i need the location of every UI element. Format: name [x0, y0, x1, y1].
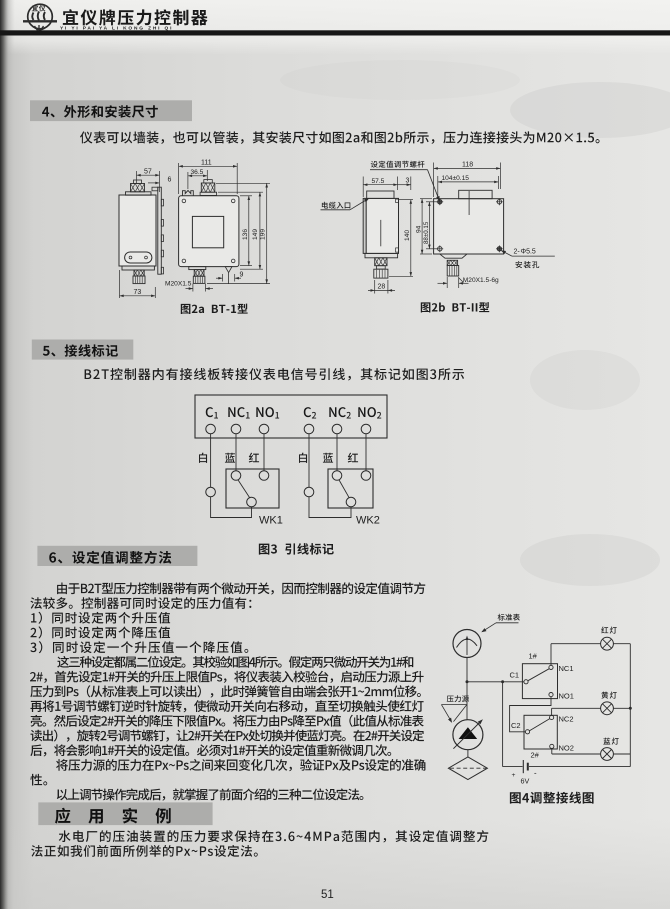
svg-text:1#: 1#	[529, 652, 538, 661]
svg-text:NC2: NC2	[559, 715, 574, 724]
svg-text:2-: 2-	[514, 248, 521, 255]
svg-text:136: 136	[242, 229, 249, 240]
svg-text:149: 149	[252, 229, 259, 240]
svg-text:C1: C1	[510, 671, 520, 680]
svg-text:WK2: WK2	[356, 515, 380, 527]
svg-text:NO2: NO2	[559, 744, 574, 753]
svg-text:118: 118	[462, 162, 473, 169]
svg-text:111: 111	[201, 160, 212, 167]
svg-text:Φ5.5: Φ5.5	[521, 248, 536, 255]
svg-text:+: +	[512, 772, 516, 779]
svg-text:104±0.15: 104±0.15	[442, 175, 470, 182]
svg-text:6: 6	[168, 177, 172, 184]
svg-text:6V: 6V	[521, 777, 530, 786]
svg-text:36.5: 36.5	[191, 169, 204, 176]
svg-text:M20X1.5: M20X1.5	[165, 281, 192, 288]
svg-text:9: 9	[240, 272, 244, 279]
svg-text:C2: C2	[511, 721, 521, 730]
svg-text:57.5: 57.5	[372, 178, 385, 185]
svg-text:140: 140	[404, 230, 411, 241]
svg-text:WK1: WK1	[259, 515, 283, 527]
svg-text:28: 28	[378, 284, 386, 291]
svg-text:NC1: NC1	[559, 664, 574, 673]
svg-text:-: -	[534, 769, 537, 778]
svg-text:199: 199	[260, 229, 267, 240]
svg-text:88±0.15: 88±0.15	[423, 221, 430, 244]
svg-text:94: 94	[416, 225, 423, 233]
svg-text:73: 73	[134, 289, 142, 296]
svg-text:M20X1.5-6g: M20X1.5-6g	[463, 277, 499, 284]
svg-text:51: 51	[321, 889, 334, 901]
svg-text:2#: 2#	[531, 751, 540, 760]
svg-text:3: 3	[406, 178, 410, 185]
svg-text:57: 57	[144, 169, 152, 176]
svg-text:NO1: NO1	[559, 692, 574, 701]
